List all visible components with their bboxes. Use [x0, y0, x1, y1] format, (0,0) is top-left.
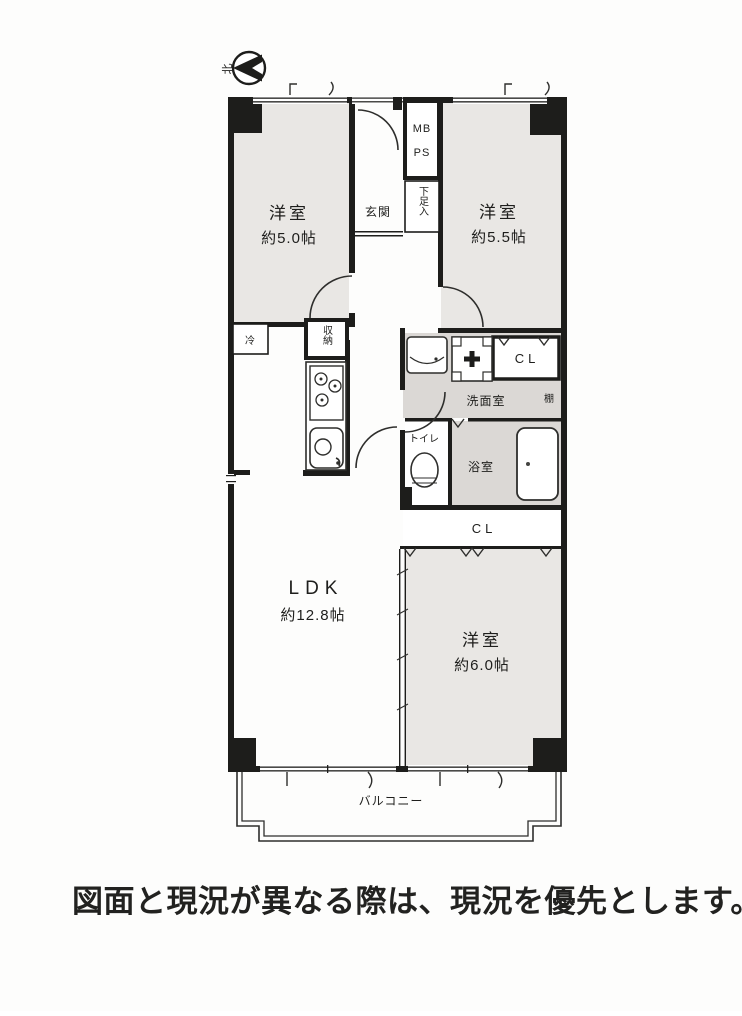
pipe-space-label: PS — [414, 147, 431, 159]
bedroom-se-label: 洋室 — [462, 631, 502, 650]
floor-plan-drawing: 北 洋室 約5.0帖 洋室 約5.5帖 LDK 約12.8帖 洋室 約6.0帖 … — [0, 0, 742, 1011]
floor-plan-page: 北 洋室 約5.0帖 洋室 約5.5帖 LDK 約12.8帖 洋室 約6.0帖 … — [0, 0, 742, 1011]
bedroom-nw-label: 洋室 — [269, 204, 309, 223]
washroom-label: 洗面室 — [466, 393, 505, 408]
entrance-label: 玄関 — [365, 204, 391, 219]
kitchen-sink-icon — [310, 428, 343, 468]
bathtub-icon — [517, 428, 558, 500]
lower-closet-label: CL — [472, 521, 497, 536]
bedroom-ne-label: 洋室 — [479, 203, 519, 222]
kitchen-counter — [306, 362, 346, 470]
refrigerator-label: 冷 — [245, 334, 255, 347]
shelf-label: 棚 — [544, 392, 554, 405]
ldk-label: LDK — [289, 578, 344, 599]
washbasin-icon — [407, 337, 447, 373]
bedroom-ne-size: 約5.5帖 — [471, 229, 527, 246]
washer-pan-icon — [452, 337, 492, 381]
upper-closet-label: CL — [515, 351, 540, 366]
ldk-size: 約12.8帖 — [280, 607, 345, 624]
bedroom-nw-size: 約5.0帖 — [261, 230, 317, 247]
meter-box-label: MB — [413, 123, 432, 135]
stove-icon — [310, 366, 343, 420]
disclaimer-text: 図面と現況が異なる際は、現況を優先とします。 — [72, 876, 742, 921]
balcony-label: バルコニー — [359, 794, 424, 808]
meter-pipe-box — [405, 101, 439, 178]
compass-north-icon: 北 — [221, 52, 265, 84]
toilet-label: トイレ — [409, 434, 439, 445]
bedroom-se-size: 約6.0帖 — [454, 657, 510, 674]
bathroom-label: 浴室 — [468, 459, 494, 474]
toilet-icon — [411, 453, 438, 487]
compass-north-label: 北 — [221, 64, 234, 75]
shoe-cabinet-label: 下足入 — [417, 186, 429, 216]
hall-storage-label: 収納 — [321, 325, 333, 346]
